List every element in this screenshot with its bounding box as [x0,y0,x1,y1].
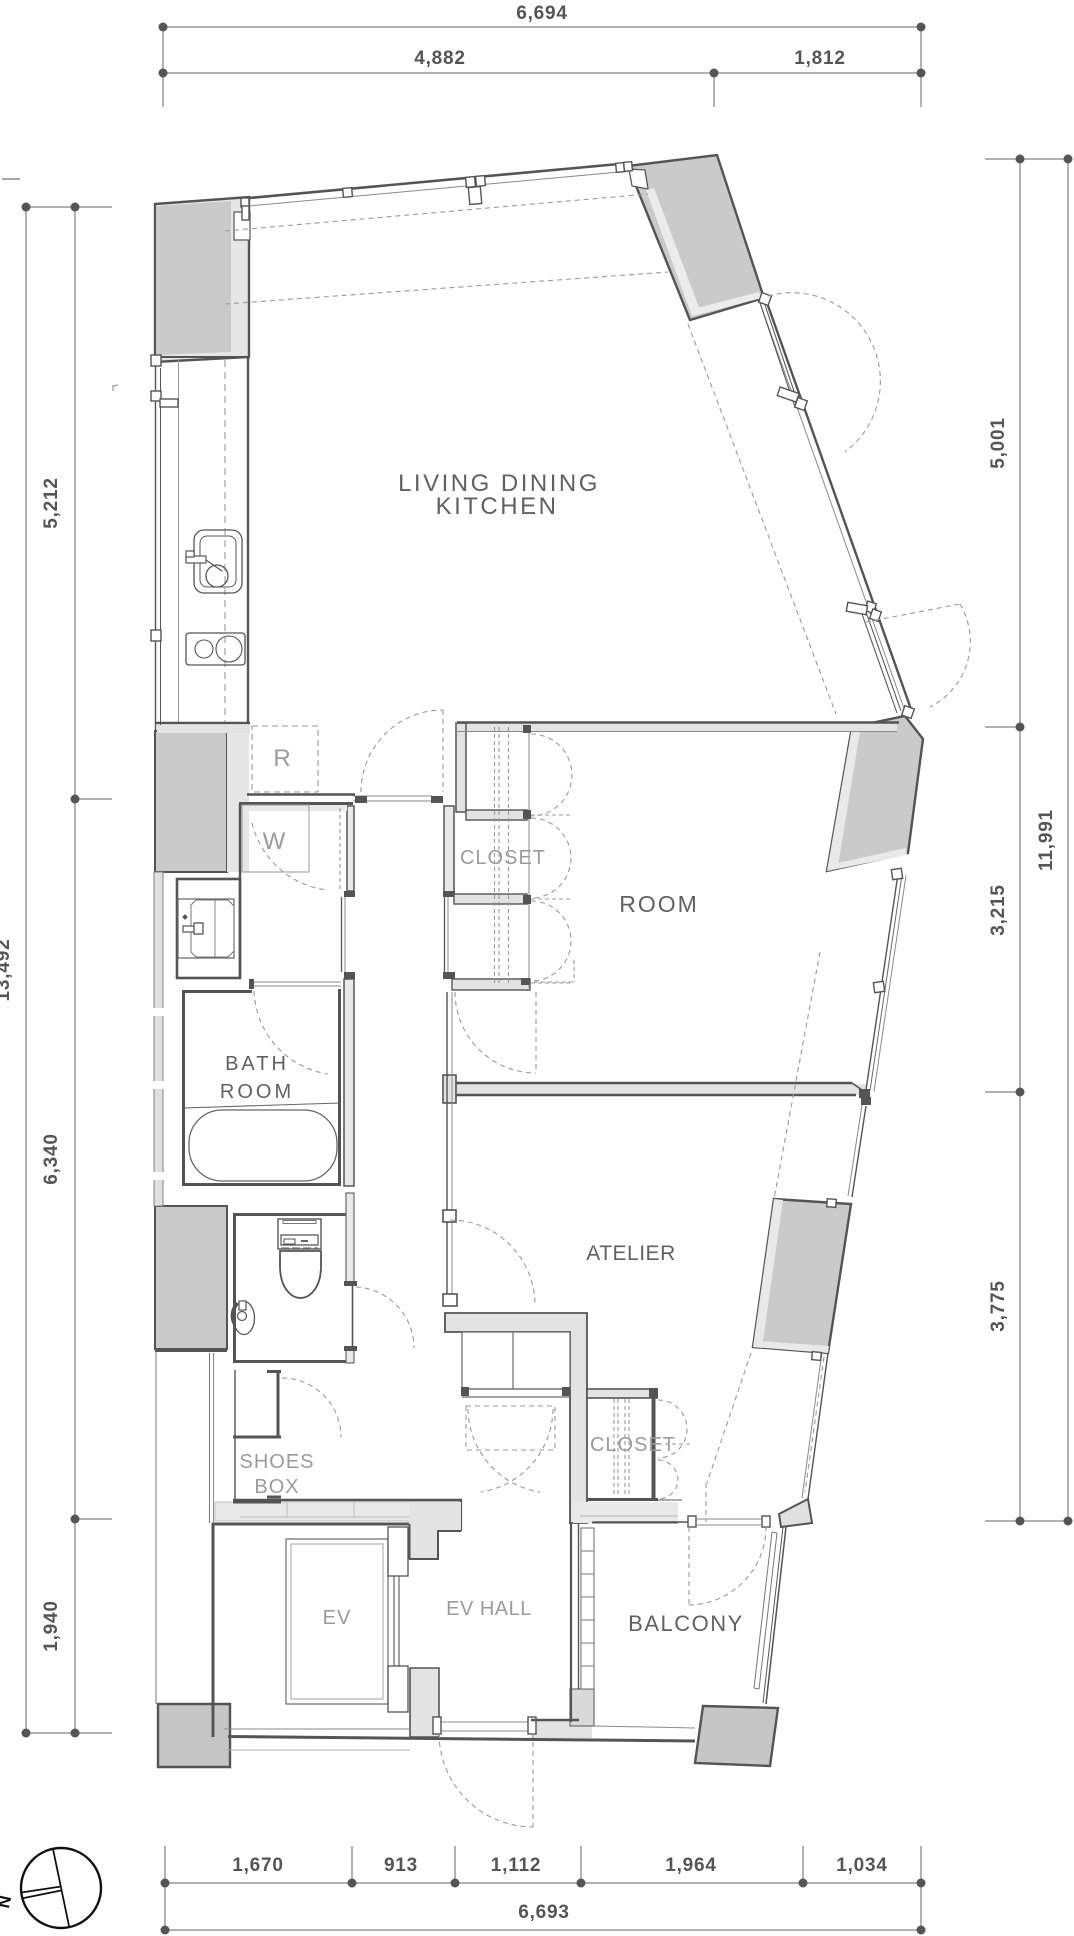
svg-text:6,340: 6,340 [41,1133,62,1185]
svg-text:EV HALL: EV HALL [446,1598,532,1620]
svg-text:KITCHEN: KITCHEN [436,493,559,520]
svg-text:3,775: 3,775 [988,1280,1009,1332]
svg-text:3,215: 3,215 [988,884,1009,936]
svg-text:ATELIER: ATELIER [586,1242,675,1265]
svg-text:SHOES: SHOES [239,1451,314,1473]
svg-text:4,882: 4,882 [414,48,466,69]
svg-text:1,112: 1,112 [491,1855,542,1876]
svg-text:ROOM: ROOM [220,1081,294,1103]
svg-text:11,991: 11,991 [1036,809,1057,871]
svg-text:5,001: 5,001 [988,417,1009,469]
svg-text:6,693: 6,693 [518,1902,570,1923]
svg-text:1,964: 1,964 [665,1855,717,1876]
svg-text:ROOM: ROOM [619,891,699,917]
svg-text:EV: EV [323,1607,352,1629]
svg-text:5,212: 5,212 [41,477,62,529]
svg-text:13,492: 13,492 [0,939,14,1002]
svg-text:BALCONY: BALCONY [628,1611,744,1636]
svg-text:1,034: 1,034 [836,1855,888,1876]
svg-text:913: 913 [384,1855,418,1876]
svg-text:1,670: 1,670 [232,1855,284,1876]
svg-text:W: W [263,828,286,855]
svg-text:BATH: BATH [225,1053,289,1075]
svg-text:1,812: 1,812 [794,48,846,69]
svg-text:CLOSET: CLOSET [590,1434,676,1456]
svg-text:CLOSET: CLOSET [460,847,546,869]
svg-text:R: R [273,745,290,772]
svg-text:BOX: BOX [254,1476,299,1498]
svg-text:1,940: 1,940 [41,1600,62,1652]
svg-text:6,694: 6,694 [516,3,568,24]
